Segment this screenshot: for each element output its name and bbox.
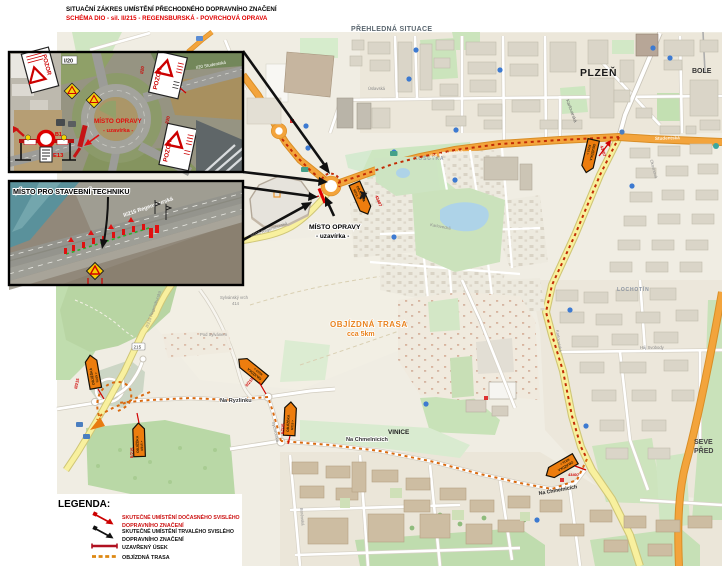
svg-text:MÍSTO OPRAVY: MÍSTO OPRAVY: [309, 222, 361, 231]
svg-text:43407: 43407: [568, 472, 580, 477]
svg-text:MÍSTO OPRAVY: MÍSTO OPRAVY: [94, 116, 142, 125]
svg-text:Pod Sylvánem: Pod Sylvánem: [200, 332, 228, 337]
svg-text:E13: E13: [53, 153, 64, 159]
svg-text:VINICE: VINICE: [388, 429, 410, 436]
svg-text:PLZEŇ: PLZEŇ: [580, 66, 617, 79]
svg-text:UZAVŘENÝ ÚSEK: UZAVŘENÝ ÚSEK: [122, 543, 168, 551]
svg-text:OBJÍZDNÁ TRASA: OBJÍZDNÁ TRASA: [330, 320, 408, 329]
svg-text:LOCHOTÍN: LOCHOTÍN: [617, 285, 650, 293]
svg-text:II/215: II/215: [280, 423, 285, 434]
svg-text:LEGENDA:: LEGENDA:: [58, 499, 110, 510]
svg-text:- uzavírka -: - uzavírka -: [316, 233, 349, 240]
svg-text:DOPRAVNÍHO ZNAČENÍ: DOPRAVNÍHO ZNAČENÍ: [122, 535, 184, 543]
svg-text:414: 414: [232, 301, 240, 306]
svg-text:BOLE: BOLE: [692, 68, 712, 75]
svg-text:SITUAČNÍ ZÁKRES UMÍSTĚNÍ PŘECH: SITUAČNÍ ZÁKRES UMÍSTĚNÍ PŘECHODNÉHO DOP…: [66, 5, 277, 13]
svg-text:SEVE: SEVE: [694, 439, 713, 446]
svg-text:Úslavská: Úslavská: [368, 86, 386, 91]
svg-text:DOPRAVNÍHO ZNAČENÍ: DOPRAVNÍHO ZNAČENÍ: [122, 521, 184, 529]
svg-text:Na Ryzlinku: Na Ryzlinku: [220, 398, 252, 404]
svg-text:PŘED: PŘED: [694, 446, 713, 455]
svg-text:Sylvánský vrch: Sylvánský vrch: [220, 295, 249, 300]
svg-text:I/20: I/20: [64, 59, 73, 65]
svg-text:- uzavírka -: - uzavírka -: [103, 128, 133, 134]
svg-text:B1: B1: [55, 132, 62, 138]
svg-text:SKUTEČNÉ UMÍSTĚNÍ DOČASNÉHO SV: SKUTEČNÉ UMÍSTĚNÍ DOČASNÉHO SVISLÉHO: [122, 513, 240, 521]
svg-text:SKUTEČNÉ UMÍSTĚNÍ TRVALÉHO SVI: SKUTEČNÉ UMÍSTĚNÍ TRVALÉHO SVISLÉHO: [122, 527, 234, 535]
svg-text:MÍSTO PRO STAVEBNÍ TECHNIKU: MÍSTO PRO STAVEBNÍ TECHNIKU: [13, 187, 130, 196]
svg-text:Na Chmelnicích: Na Chmelnicích: [346, 437, 389, 443]
svg-text:SCHÉMA DIO - sil. II/215 - REG: SCHÉMA DIO - sil. II/215 - REGENSBURSKÁ …: [66, 14, 268, 22]
svg-text:PŘEHLEDNÁ SITUACE: PŘEHLEDNÁ SITUACE: [351, 24, 432, 33]
svg-text:Studentská: Studentská: [655, 135, 680, 141]
svg-text:OBJÍZDNÁ TRASA: OBJÍZDNÁ TRASA: [122, 553, 170, 561]
svg-text:Háj Svobody: Háj Svobody: [640, 345, 665, 350]
svg-text:II/215: II/215: [129, 447, 134, 458]
svg-text:cca 5km: cca 5km: [347, 331, 375, 338]
svg-text:215: 215: [134, 345, 142, 350]
